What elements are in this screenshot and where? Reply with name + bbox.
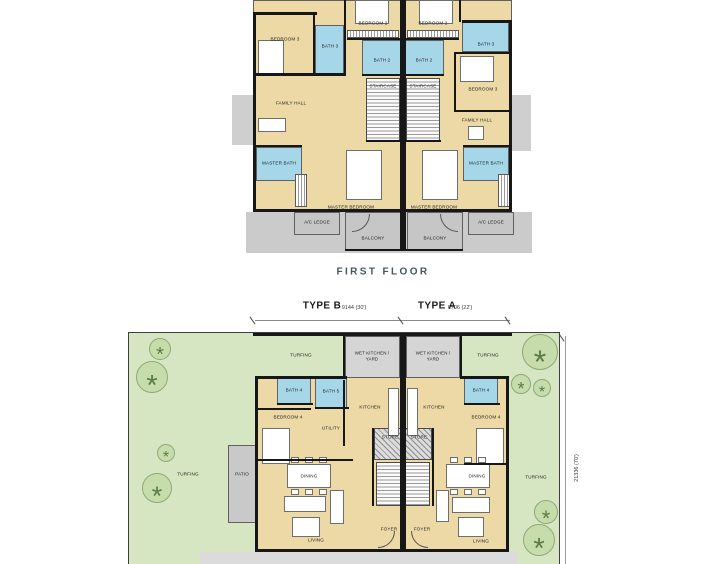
chair [291,489,299,495]
wall [255,549,509,552]
tree [142,473,172,503]
floor-plan-image: BEDROOM 2BEDROOM 2BEDROOM 3BATH 3BATH 2B… [0,0,709,564]
room-label: DINING [469,474,486,479]
sofa [452,497,490,513]
sofa [436,490,449,522]
room-label: WET KITCHEN / YARD [412,350,454,361]
room-label: UTILITY [322,426,340,431]
wall [253,333,512,336]
porch [200,552,518,564]
room-label: TURFING [177,472,198,477]
room-label: FOYER [381,527,398,532]
tree [511,374,531,394]
sofa [284,496,326,512]
counter [388,388,399,436]
wall [343,336,345,378]
tree [533,379,551,397]
room-label: STORE [411,435,428,440]
counter [407,388,418,436]
room-label: LIVING [473,539,489,544]
room-label: DINING [301,474,318,479]
height-dimension: 21336 (70') [574,454,580,482]
wall [257,459,353,461]
sofa [330,490,344,524]
wall [400,336,406,552]
chair [478,489,486,495]
chair [305,489,313,495]
room-label: KITCHEN [423,405,444,410]
wall [460,336,462,378]
room-label: TURFING [477,353,498,358]
patio [228,445,257,523]
wall [372,428,374,506]
height-dimension-line [565,336,566,564]
chair [450,457,458,463]
stairs-right [405,462,430,506]
rug [292,517,320,537]
stairs-left [376,462,401,506]
tree [149,338,171,360]
room-label: LIVING [308,538,324,543]
room-label: FOYER [414,527,431,532]
wall [277,403,313,405]
room-label: KITCHEN [359,405,380,410]
room-label: TURFING [525,475,546,480]
rug [458,517,484,537]
room-label: BATH 4 [473,388,490,393]
wall [464,403,500,405]
wall [343,380,345,446]
tree [534,500,558,524]
wall [257,408,311,410]
room-label: BATH 5 [323,389,340,394]
chair [319,489,327,495]
wall [255,376,347,379]
wall [432,428,434,506]
tree [522,334,558,370]
wall [460,376,509,379]
room-label: WET KITCHEN / YARD [351,350,393,361]
room-label: PATIO [235,472,249,477]
ground-floor-plan: TURFINGTURFINGTURFINGTURFINGWET KITCHEN … [0,0,709,564]
tree [157,444,175,462]
chair [464,489,472,495]
room-label: BATH 4 [286,388,303,393]
wall [255,376,258,552]
wall [464,463,508,465]
room-label: BEDROOM 4 [274,415,303,420]
chair [450,489,458,495]
tree [523,524,555,556]
room-label: STORE [382,435,399,440]
room-label: TURFING [290,353,311,358]
tree [136,361,168,393]
room-label: BEDROOM 4 [472,415,501,420]
